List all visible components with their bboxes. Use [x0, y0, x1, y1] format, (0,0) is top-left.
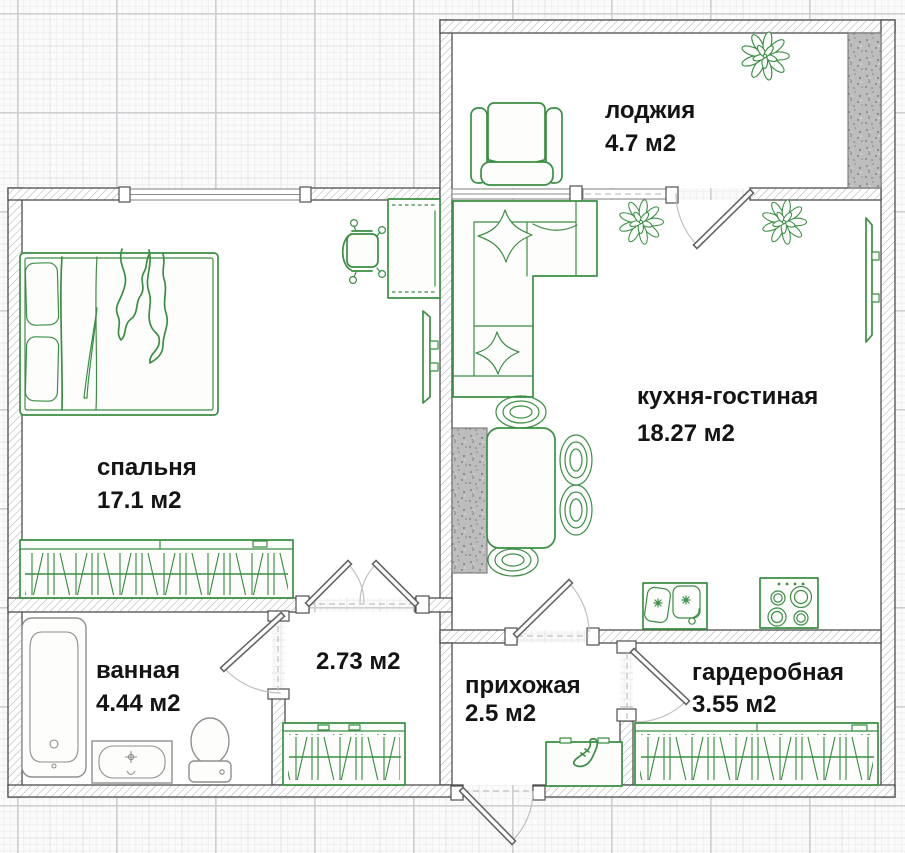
closet-furniture [283, 723, 405, 785]
wardrobe-room-name: гардеробная [692, 659, 844, 686]
tv-bracket [872, 294, 879, 302]
wall-outer-right [881, 20, 895, 797]
double-bed [20, 249, 218, 415]
marker [300, 187, 311, 202]
shoe-cabinet [546, 738, 622, 786]
hallway-name: прихожая [465, 672, 581, 699]
cabinet-handle [598, 738, 609, 743]
bedroom-area: 17.1 м2 [97, 487, 181, 514]
bathroom-sink [92, 741, 172, 783]
wall-loggia-top [440, 20, 895, 33]
marker [119, 187, 130, 202]
drain [682, 596, 690, 604]
closet-area: 2.73 м2 [316, 648, 400, 675]
bedroom-wardrobe [20, 540, 293, 598]
tv-bracket [430, 341, 438, 349]
wall-bedroom-bottom-left [8, 598, 309, 612]
bathtub [22, 618, 86, 777]
wall-loggia-kitchen [750, 188, 881, 200]
wall-center-vertical [440, 20, 452, 643]
kitchen-sink [643, 583, 707, 629]
marker [570, 186, 582, 202]
loggia-area: 4.7 м2 [605, 130, 676, 157]
wardrobe-room-area: 3.55 м2 [692, 691, 776, 718]
kitchen-concrete-block [452, 428, 487, 573]
kitchen-living-name: кухня-гостиная [637, 383, 818, 410]
bathroom-name: ванная [96, 657, 180, 684]
pillow [25, 337, 59, 402]
wall-bottom-left [8, 785, 463, 797]
bathroom-area: 4.44 м2 [96, 690, 180, 717]
loggia-concrete-block [848, 33, 881, 188]
cooktop [760, 578, 818, 628]
wardrobe-handle [852, 725, 867, 731]
desk [388, 199, 440, 298]
marker [533, 786, 545, 800]
bedroom-name: спальня [97, 454, 197, 481]
hallway-furniture [546, 738, 622, 786]
cabinet-handle [560, 738, 571, 743]
pillow [25, 263, 59, 326]
wardrobe-handle [253, 541, 267, 547]
wardrobe-room-closet [635, 723, 878, 785]
hallway-area: 2.5 м2 [465, 700, 536, 727]
wardrobe-handle [349, 725, 360, 730]
drain [654, 599, 662, 607]
wall-bedroom-top-left [8, 188, 128, 200]
wardrobe-room-furniture [635, 723, 878, 785]
loggia-name: лоджия [605, 97, 695, 124]
tv-bracket [430, 363, 438, 371]
wardrobe-handle [318, 725, 329, 730]
closet-wardrobe [283, 723, 405, 785]
floor-plan: лоджия 4.7 м2 кухня-гостиная 18.27 м2 сп… [0, 0, 905, 853]
kitchen-living-area: 18.27 м2 [637, 420, 735, 447]
armchair [471, 103, 562, 185]
toilet [189, 718, 231, 782]
tv-bracket [872, 252, 879, 260]
wall-closet-hallway [440, 643, 452, 785]
